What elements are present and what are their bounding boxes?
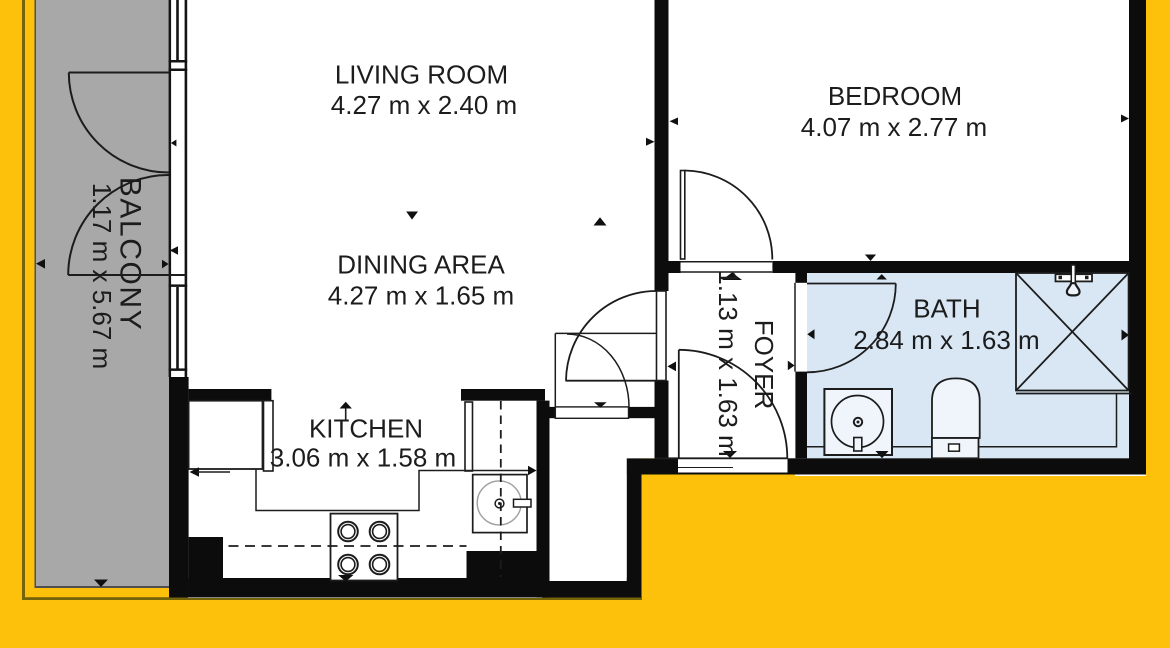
- svg-text:1.17 m x 5.67 m: 1.17 m x 5.67 m: [87, 183, 117, 369]
- svg-text:3.06 m x 1.58 m: 3.06 m x 1.58 m: [270, 443, 456, 473]
- svg-text:4.27 m x 2.40 m: 4.27 m x 2.40 m: [331, 90, 517, 120]
- svg-text:4.07 m x 2.77 m: 4.07 m x 2.77 m: [801, 112, 987, 142]
- svg-text:DINING AREA: DINING AREA: [337, 250, 505, 280]
- svg-text:LIVING ROOM: LIVING ROOM: [335, 60, 508, 90]
- svg-text:BALCONY: BALCONY: [113, 177, 146, 332]
- svg-text:1.13 m x 1.63 m: 1.13 m x 1.63 m: [713, 270, 743, 456]
- svg-text:KITCHEN: KITCHEN: [309, 414, 423, 444]
- svg-text:BEDROOM: BEDROOM: [828, 81, 962, 111]
- svg-text:BATH: BATH: [913, 294, 980, 324]
- svg-text:FOYER: FOYER: [749, 320, 779, 410]
- svg-text:4.27 m x 1.65 m: 4.27 m x 1.65 m: [328, 281, 514, 311]
- svg-text:2.84 m x 1.63 m: 2.84 m x 1.63 m: [853, 325, 1039, 355]
